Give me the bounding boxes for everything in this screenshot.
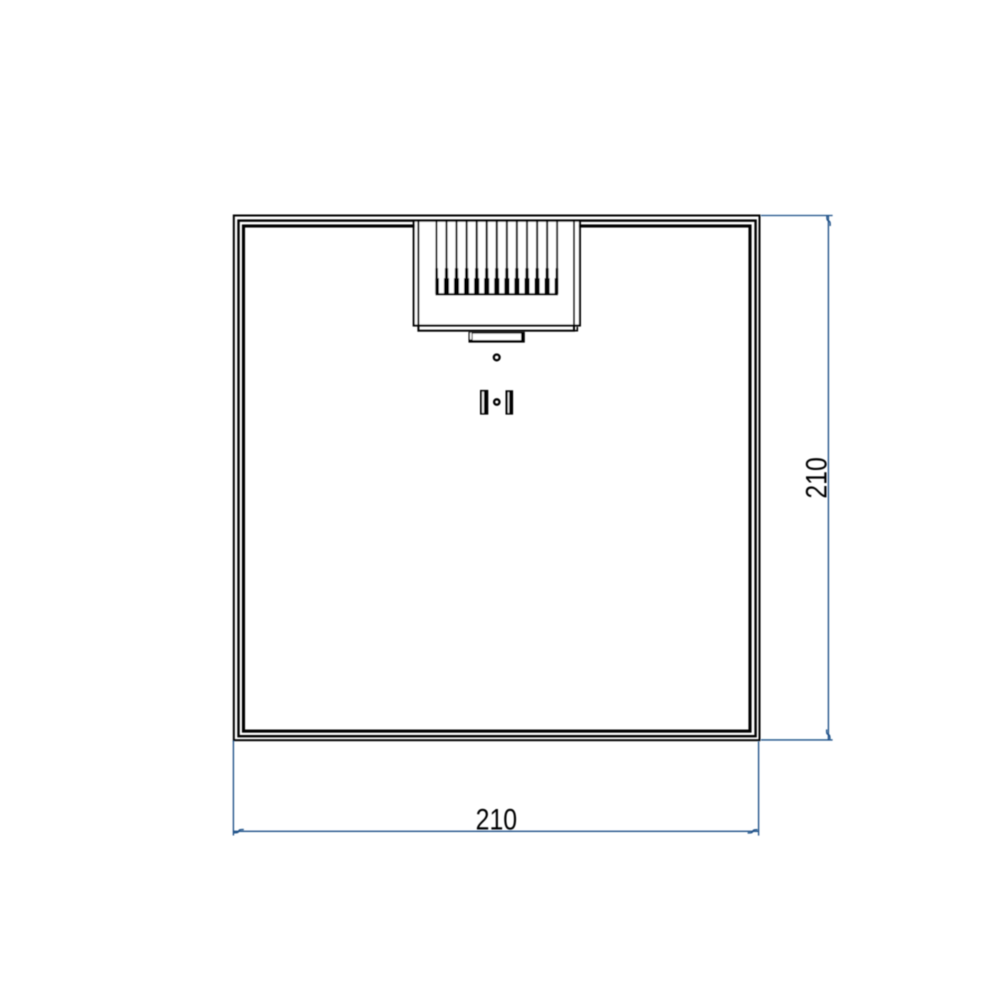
svg-text:210: 210 xyxy=(476,803,518,836)
svg-text:210: 210 xyxy=(800,457,833,499)
